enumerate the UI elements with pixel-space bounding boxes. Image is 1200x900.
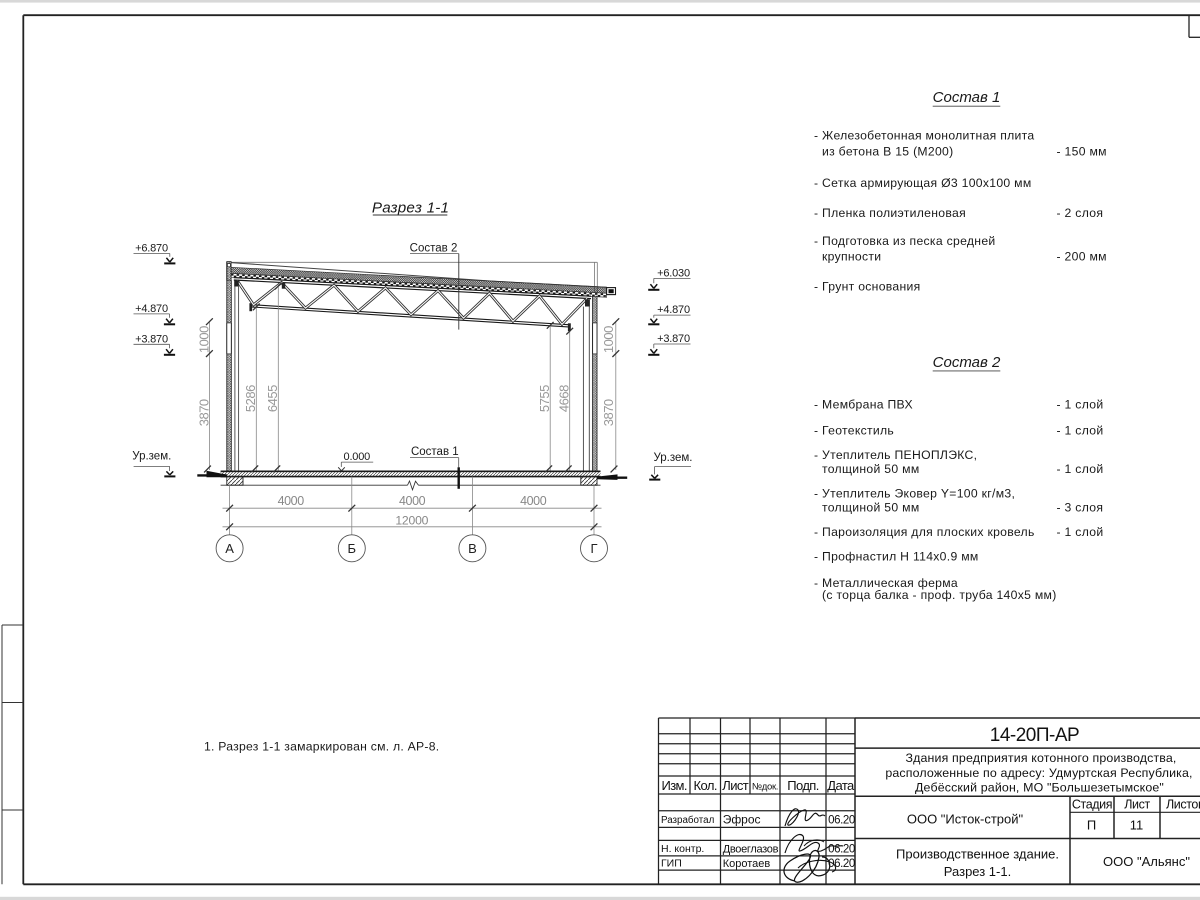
svg-text:Подп.: Подп.: [787, 778, 819, 793]
svg-text:06.20: 06.20: [828, 814, 855, 826]
svg-text:12000: 12000: [395, 513, 428, 527]
svg-text:- Утеплитель ПЕНОПЛЭКС,: - Утеплитель ПЕНОПЛЭКС,: [814, 448, 977, 462]
svg-text:4000: 4000: [520, 494, 547, 508]
svg-text:толщиной 50 мм: толщиной 50 мм: [822, 462, 920, 476]
svg-text:+3.870: +3.870: [135, 333, 168, 345]
svg-text:№док.: №док.: [752, 781, 778, 792]
svg-text:Лист: Лист: [722, 778, 748, 793]
svg-text:- Грунт основания: - Грунт основания: [814, 279, 921, 293]
svg-text:Здания предприятия котонного п: Здания предприятия котонного производств…: [905, 751, 1176, 765]
svg-text:- 2 слоя: - 2 слоя: [1057, 206, 1104, 220]
svg-text:Дебёсский район, МО "Большезет: Дебёсский район, МО "Большезетымское": [915, 781, 1164, 795]
svg-text:6455: 6455: [265, 385, 280, 412]
svg-text:3870: 3870: [601, 399, 616, 426]
svg-text:4000: 4000: [399, 494, 426, 508]
svg-text:3870: 3870: [196, 399, 211, 426]
svg-text:5286: 5286: [243, 385, 258, 412]
svg-text:0.000: 0.000: [344, 451, 371, 463]
svg-text:Коротаев: Коротаев: [723, 858, 771, 870]
svg-text:- Утеплитель Эковер Y=100 кг/м: - Утеплитель Эковер Y=100 кг/м3,: [814, 487, 1015, 501]
svg-text:расположенные по адресу: Удмур: расположенные по адресу: Удмуртская Респ…: [885, 766, 1192, 780]
svg-text:Кол.: Кол.: [694, 778, 717, 793]
svg-text:+4.870: +4.870: [657, 304, 690, 316]
svg-text:Стадия: Стадия: [1072, 798, 1112, 812]
svg-text:11: 11: [1130, 818, 1144, 833]
svg-text:06.20: 06.20: [828, 843, 855, 855]
svg-text:толщиной 50 мм: толщиной 50 мм: [822, 501, 920, 515]
svg-text:- Сетка армирующая Ø3 100х100: - Сетка армирующая Ø3 100х100 мм: [814, 176, 1032, 190]
svg-text:Эфрос: Эфрос: [723, 812, 761, 826]
svg-text:- Подготовка из песка средней: - Подготовка из песка средней: [814, 234, 996, 248]
svg-text:Ур.зем.: Ур.зем.: [653, 452, 692, 464]
svg-text:+6.870: +6.870: [135, 243, 168, 255]
svg-text:- Железобетонная монолитная п: - Железобетонная монолитная плита: [814, 129, 1034, 143]
svg-text:- 1 слой: - 1 слой: [1057, 424, 1104, 438]
svg-text:+4.870: +4.870: [135, 303, 168, 315]
svg-text:- Профнастил Н 114х0.9 мм: - Профнастил Н 114х0.9 мм: [814, 550, 979, 564]
svg-text:Н. контр.: Н. контр.: [661, 843, 704, 855]
svg-text:Ур.зем.: Ур.зем.: [132, 451, 171, 463]
svg-text:5755: 5755: [537, 385, 552, 412]
svg-text:4668: 4668: [556, 385, 571, 412]
svg-text:- 1 слой: - 1 слой: [1057, 397, 1104, 411]
svg-text:- Геотекстиль: - Геотекстиль: [814, 424, 894, 438]
svg-text:Разрез 1-1.: Разрез 1-1.: [944, 864, 1011, 879]
svg-text:Разработал: Разработал: [661, 815, 715, 826]
svg-text:Состав 1: Состав 1: [933, 89, 1001, 106]
svg-text:Состав 1: Состав 1: [411, 446, 459, 458]
svg-text:- 200 мм: - 200 мм: [1057, 249, 1107, 263]
svg-text:1000: 1000: [196, 326, 211, 353]
svg-text:14-20П-АР: 14-20П-АР: [990, 725, 1079, 746]
svg-text:крупности: крупности: [822, 249, 881, 263]
svg-text:+6.030: +6.030: [657, 267, 690, 279]
svg-text:Дата: Дата: [827, 778, 855, 793]
svg-text:- 1 слой: - 1 слой: [1057, 462, 1104, 476]
svg-text:+3.870: +3.870: [657, 333, 690, 345]
svg-text:- Пароизоляция для плоских кро: - Пароизоляция для плоских кровель: [814, 525, 1035, 539]
svg-text:Разрез 1-1: Разрез 1-1: [372, 199, 449, 216]
svg-text:- Мембрана ПВХ: - Мембрана ПВХ: [814, 397, 913, 411]
svg-text:Лист: Лист: [1124, 798, 1150, 812]
svg-text:1. Разрез 1-1 замаркирован см.: 1. Разрез 1-1 замаркирован см. л. АР-8.: [204, 740, 439, 754]
svg-text:А: А: [225, 541, 234, 556]
svg-text:Изм.: Изм.: [661, 778, 686, 793]
svg-text:- 150 мм: - 150 мм: [1057, 144, 1107, 158]
svg-text:06.20: 06.20: [828, 858, 855, 870]
svg-text:4000: 4000: [278, 494, 305, 508]
svg-text:1000: 1000: [601, 326, 616, 353]
svg-text:Листов: Листов: [1166, 798, 1200, 812]
svg-text:Состав 2: Состав 2: [410, 242, 458, 254]
svg-text:П: П: [1087, 818, 1096, 833]
svg-text:Состав 2: Состав 2: [933, 354, 1001, 371]
svg-text:ГИП: ГИП: [661, 858, 682, 870]
svg-text:ООО "Исток-строй": ООО "Исток-строй": [907, 811, 1024, 826]
svg-text:из бетона В 15 (М200): из бетона В 15 (М200): [822, 144, 953, 158]
svg-text:- 3 слоя: - 3 слоя: [1057, 501, 1104, 515]
svg-text:(с торца балка - проф. труба 1: (с торца балка - проф. труба 140х5 мм): [822, 588, 1057, 602]
svg-text:В: В: [468, 541, 477, 556]
svg-text:ООО "Альянс": ООО "Альянс": [1103, 854, 1190, 869]
svg-text:Двоеглазов: Двоеглазов: [723, 843, 779, 855]
svg-text:- Пленка полиэтиленовая: - Пленка полиэтиленовая: [814, 206, 966, 220]
svg-text:Б: Б: [348, 541, 357, 556]
svg-text:Г: Г: [590, 541, 597, 556]
svg-text:Производственное здание.: Производственное здание.: [896, 847, 1059, 862]
svg-text:- 1 слой: - 1 слой: [1057, 525, 1104, 539]
